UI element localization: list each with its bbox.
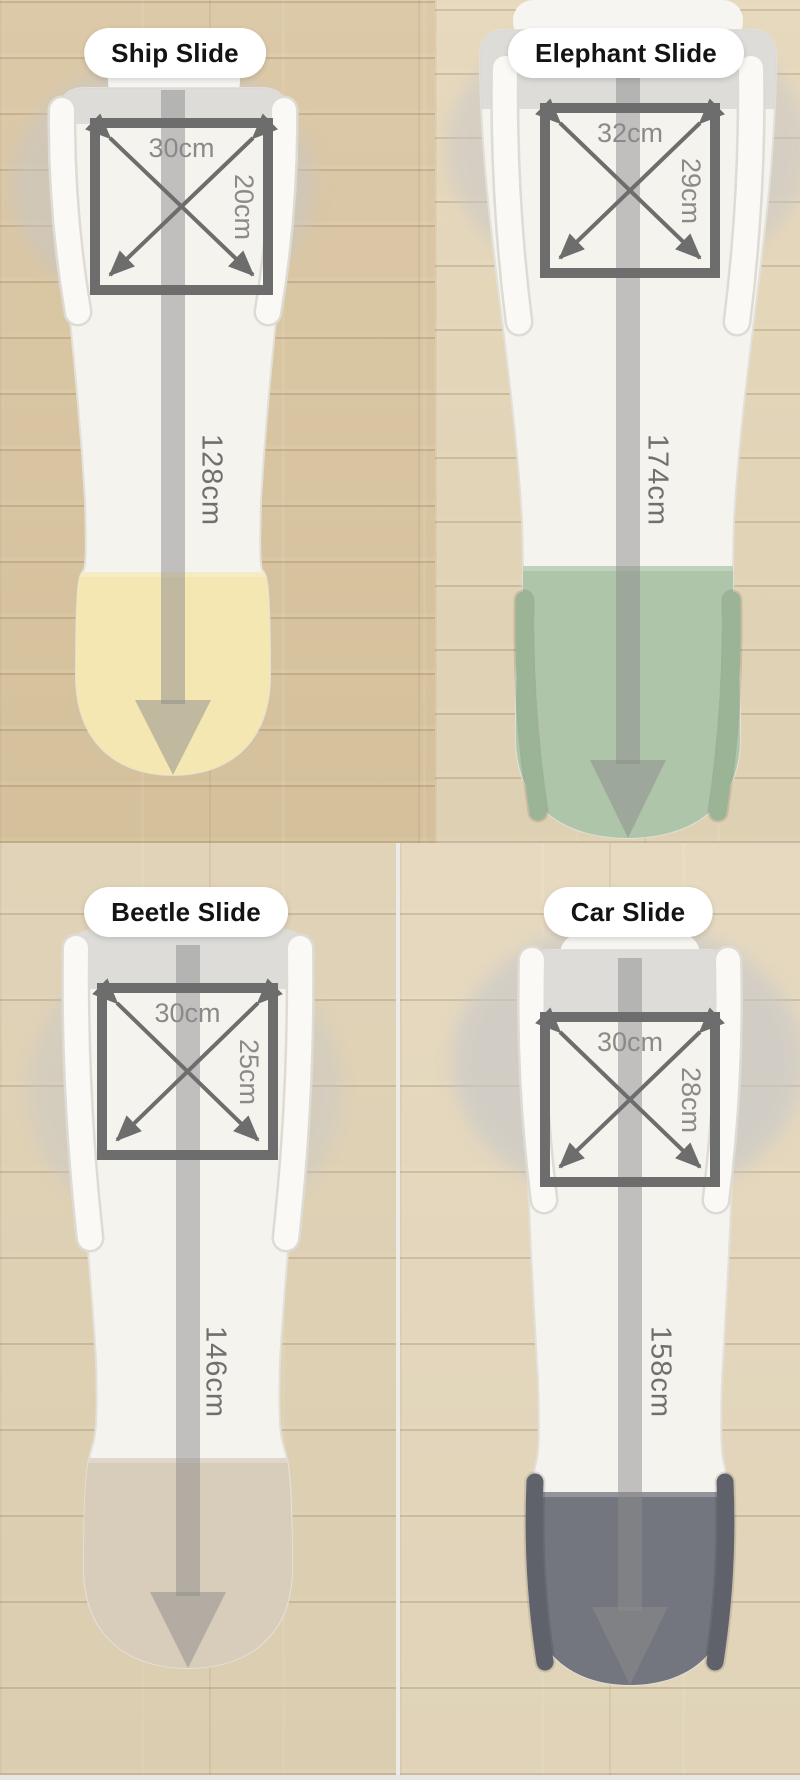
length-label: 158cm <box>644 1326 677 1418</box>
top-width-label: 30cm <box>148 133 214 164</box>
product-name: Car Slide <box>571 897 686 928</box>
dimension-square: 30cm 25cm <box>97 983 278 1160</box>
panel-car-slide <box>400 843 800 1775</box>
bottom-divider <box>0 1775 800 1780</box>
car-slide-photo <box>400 843 800 1775</box>
product-name-pill: Ship Slide <box>84 28 266 78</box>
dimension-square: 30cm 20cm <box>90 118 273 295</box>
dimension-square: 30cm 28cm <box>540 1012 720 1187</box>
length-label: 174cm <box>641 434 674 526</box>
top-depth-label: 28cm <box>675 1066 706 1132</box>
top-width-label: 32cm <box>597 118 663 149</box>
top-width-label: 30cm <box>154 998 220 1029</box>
product-name: Ship Slide <box>111 38 239 69</box>
product-name: Elephant Slide <box>535 38 717 69</box>
top-depth-label: 29cm <box>675 157 706 223</box>
product-name-pill: Beetle Slide <box>84 887 288 937</box>
top-width-label: 30cm <box>597 1027 663 1058</box>
slide-dimension-collage: Ship Slide Elephant Slide Beetle Slide C… <box>0 0 800 1780</box>
length-label: 128cm <box>195 434 228 526</box>
top-depth-label: 25cm <box>233 1038 264 1104</box>
product-name-pill: Car Slide <box>544 887 713 937</box>
length-label: 146cm <box>199 1326 232 1418</box>
top-depth-label: 20cm <box>228 173 259 239</box>
product-name: Beetle Slide <box>111 897 261 928</box>
dimension-square: 32cm 29cm <box>540 103 720 278</box>
product-name-pill: Elephant Slide <box>508 28 744 78</box>
